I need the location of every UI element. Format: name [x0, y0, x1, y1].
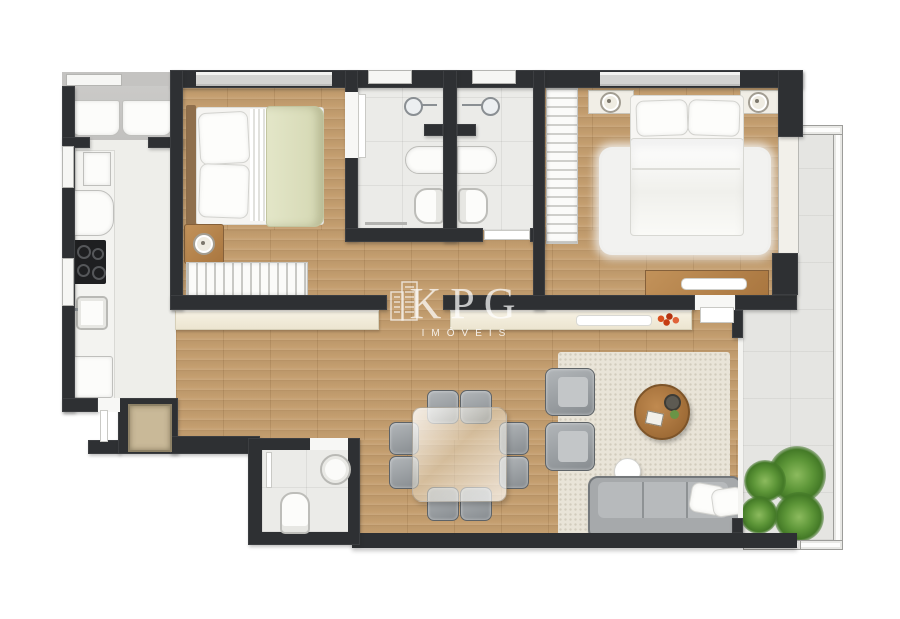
kitchen-bottom-wall [62, 398, 98, 412]
powder-room-toilet [280, 492, 310, 534]
kitchen-window-lower [62, 258, 74, 306]
bed1-pillow-bottom [198, 163, 250, 219]
bedroom2-dresser [645, 270, 769, 298]
bathroom2-door-leaf [484, 230, 530, 240]
flower-decor [654, 312, 682, 327]
bed2-duvet [630, 138, 744, 236]
lamp-center [607, 99, 611, 103]
bathroom2-window [472, 70, 516, 84]
plant-medium [744, 460, 786, 502]
bedroom2-window [600, 72, 740, 86]
refrigerator [70, 190, 114, 236]
bedroom2-door-leaf [700, 307, 734, 323]
bedroom1-bottom-wall [170, 295, 387, 310]
burner [77, 264, 90, 277]
sofa-seam [686, 482, 688, 518]
bed1-headboard [186, 105, 196, 225]
buildings-icon [388, 278, 422, 322]
laundry-window [66, 74, 122, 86]
cooktop [73, 240, 106, 284]
burner [77, 245, 91, 259]
watermark: KPG IMÓVEIS [382, 282, 552, 354]
shower2-partition [457, 124, 476, 136]
bed1-blanket [266, 106, 324, 227]
heater-cabinet [128, 404, 172, 452]
bedroom1-window [196, 72, 332, 86]
balcony-floor-upper [797, 133, 833, 310]
shower2-head [481, 97, 500, 116]
hall-bottom-wall-left [170, 436, 260, 454]
bed2-pillow-left [635, 99, 688, 137]
bed1-lamp [193, 233, 215, 255]
service-door-leaf [100, 410, 108, 442]
powder-room-door-opening [310, 438, 348, 450]
wall-oven [83, 152, 111, 186]
shower1-partition [424, 124, 443, 136]
left-outer-wall [62, 86, 75, 412]
washer [71, 100, 120, 136]
table-book [645, 410, 664, 426]
bed2-lamp-left [600, 92, 621, 113]
bathroom1-towel-bar [365, 222, 407, 225]
bathrooms-middle-wall [443, 70, 457, 242]
bedroom2-balcony-corner-bottom [772, 253, 798, 295]
bathroom1-door-opening [345, 92, 358, 158]
bathroom2-vanity [457, 146, 497, 174]
bedroom2-left-wall [533, 70, 545, 310]
bathroom1-vanity [405, 146, 445, 174]
table-plant [670, 410, 679, 419]
niche-wall-bottom-left [88, 440, 120, 454]
kitchen-sink [76, 296, 108, 330]
floor-plan: KPG IMÓVEIS [0, 0, 900, 619]
sofa [588, 476, 742, 540]
bedroom2-balcony-corner-top [778, 70, 803, 137]
bed2-pillow-right [687, 99, 740, 137]
dryer [122, 100, 172, 136]
coffee-table [634, 384, 690, 440]
bathrooms-bottom-wall-left [345, 228, 483, 242]
armchair-top [545, 368, 595, 416]
watermark-subtitle: IMÓVEIS [382, 328, 552, 339]
armchair-seat [558, 377, 588, 407]
lamp-center [201, 241, 205, 245]
dresser-tray [681, 278, 747, 290]
bed1-wardrobe [186, 262, 308, 296]
bottom-outer-wall [352, 533, 797, 548]
plant-small [740, 496, 778, 534]
bed2-duvet-fold [632, 168, 740, 170]
bathroom1-window [368, 70, 412, 84]
burner [92, 248, 104, 260]
sideboard-left [175, 310, 379, 330]
armchair-bottom [545, 422, 595, 471]
living-balcony-door-sill [738, 338, 743, 518]
sofa-seam [642, 482, 644, 518]
burner [92, 266, 106, 280]
bedroom2-balcony-door-sill [778, 137, 799, 253]
balcony-glass-rail-right [833, 125, 843, 550]
living-balcony-wall-stub-bottom [732, 518, 743, 533]
dining-table-glass [412, 407, 507, 502]
balcony-glass-rail-top [797, 125, 843, 135]
bathroom1-door-leaf [358, 94, 366, 158]
shower1-head [404, 97, 423, 116]
bed1-nightstand [184, 224, 224, 264]
powder-room-door-leaf [266, 452, 272, 488]
lamp-center [755, 99, 759, 103]
powder-room-sink [320, 454, 351, 485]
kitchen-window-upper [62, 146, 74, 188]
bathroom1-toilet [414, 188, 444, 224]
sideboard-tray [576, 315, 652, 326]
bedroom2-bottom-wall-right [735, 295, 797, 310]
bed1-pillow-top [198, 111, 251, 166]
bed2-lamp-right [748, 92, 769, 113]
dishwasher [70, 356, 113, 398]
balcony-glass-rail-bottom-right [797, 540, 843, 550]
bathroom2-toilet [458, 188, 488, 224]
bedroom1-left-wall [170, 70, 183, 310]
armchair-seat [558, 431, 588, 462]
table-decor-bowl [664, 394, 681, 411]
bedroom2-open-closet [546, 88, 578, 244]
